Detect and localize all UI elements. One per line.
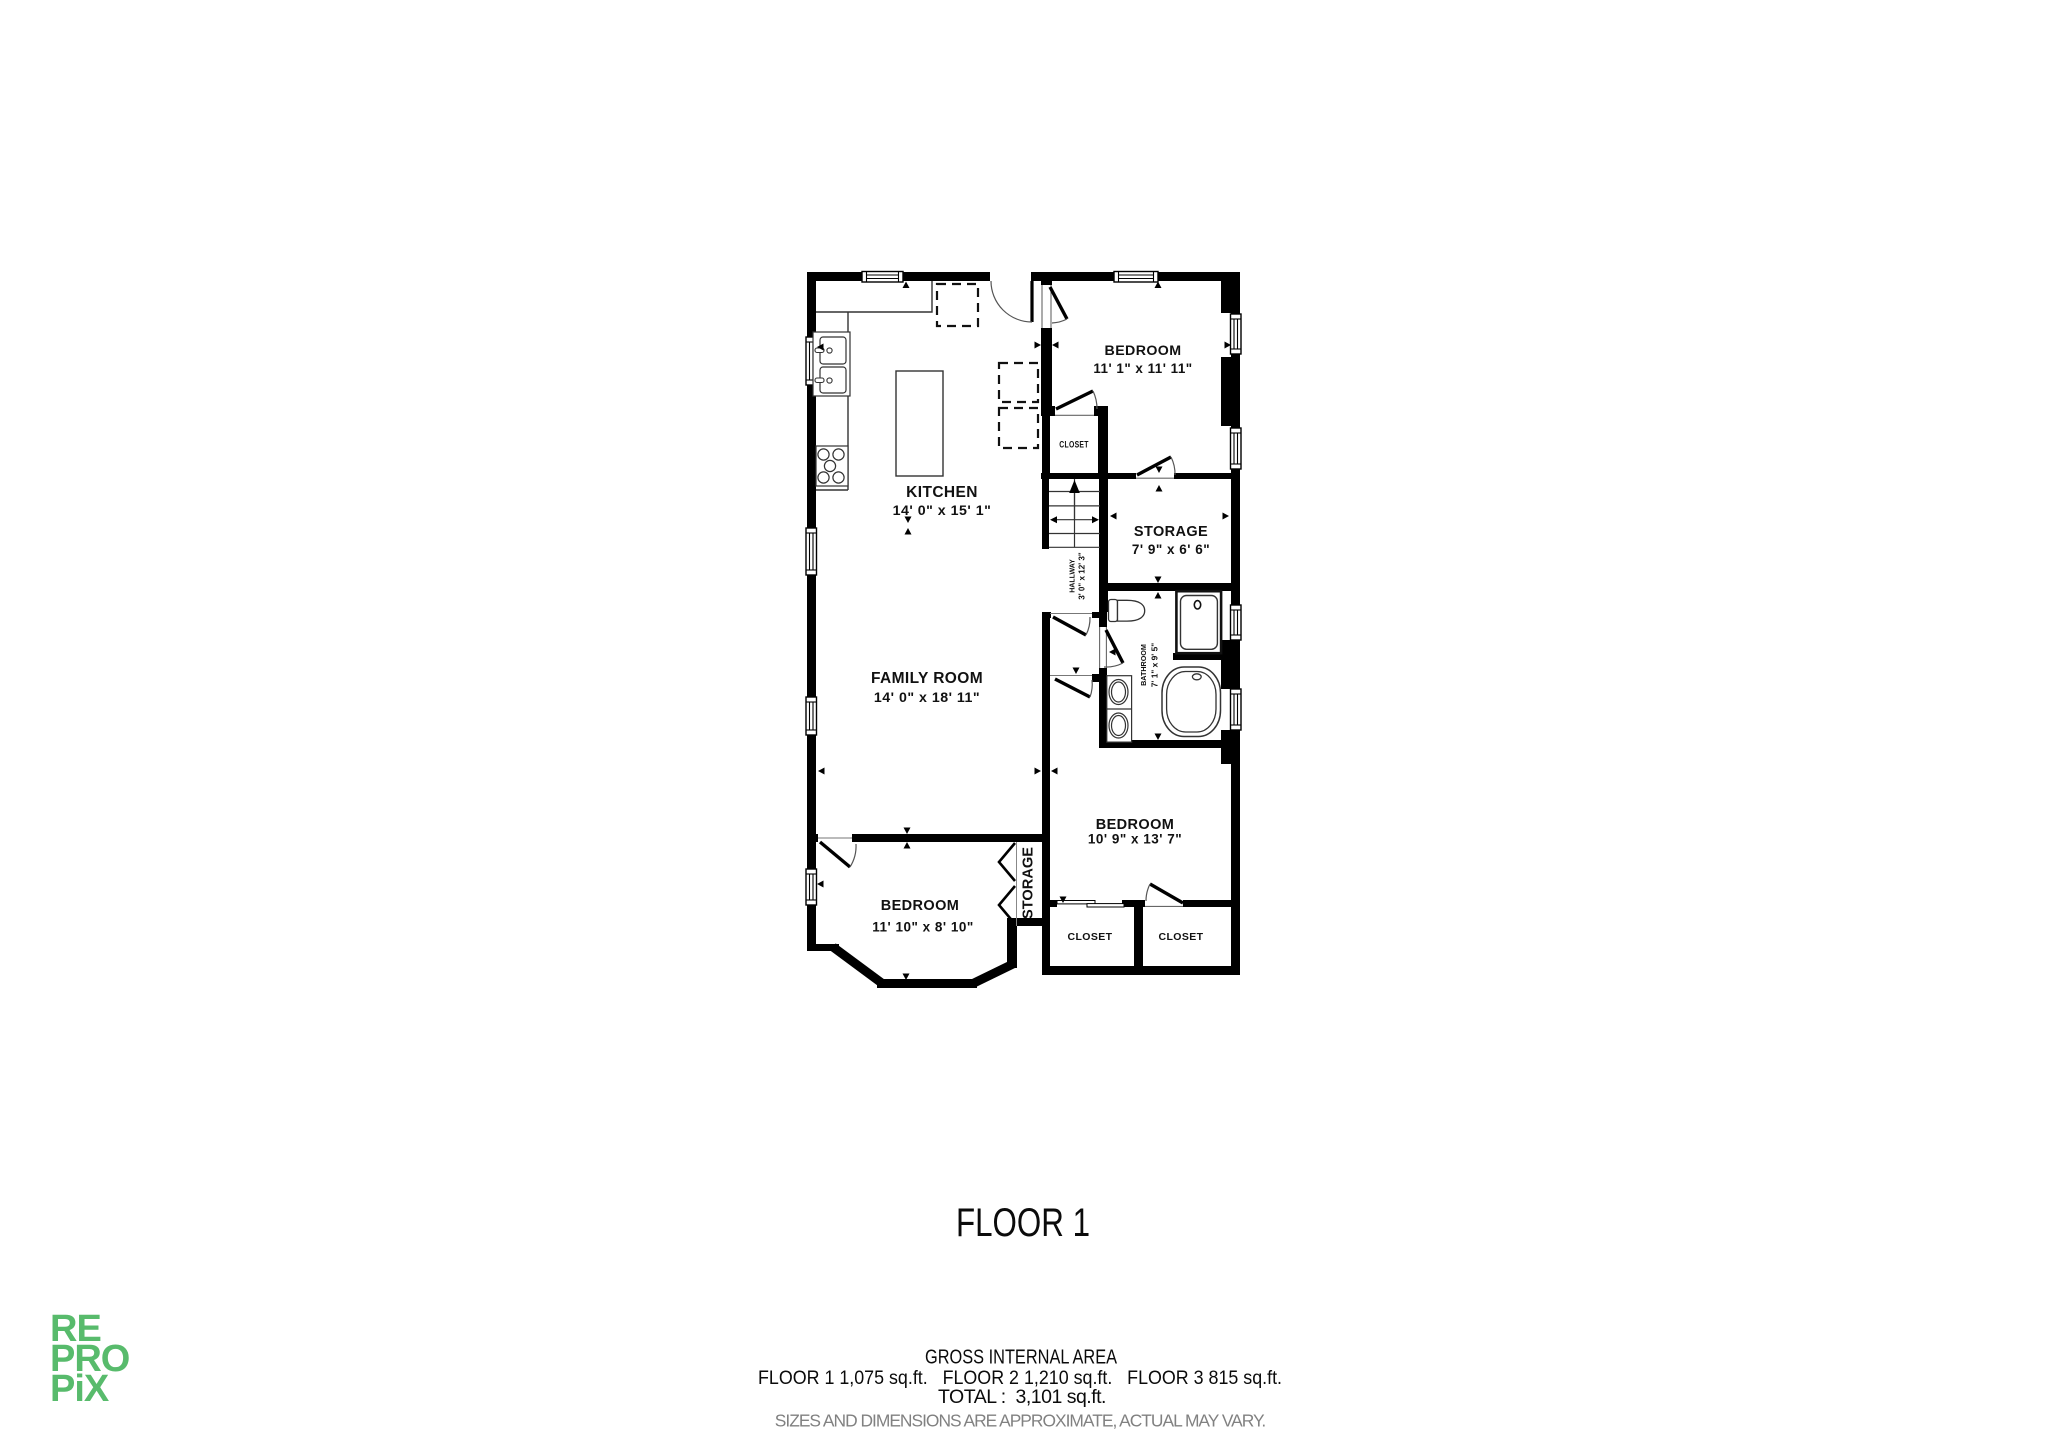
svg-text:7' 1" x 9' 5": 7' 1" x 9' 5" xyxy=(1150,643,1160,688)
svg-text:CLOSET: CLOSET xyxy=(1159,931,1204,943)
svg-text:CLOSET: CLOSET xyxy=(1059,440,1089,451)
svg-text:STORAGE: STORAGE xyxy=(1134,524,1208,540)
svg-text:BATHROOM: BATHROOM xyxy=(1139,644,1148,686)
svg-text:BEDROOM: BEDROOM xyxy=(881,898,960,914)
svg-text:CLOSET: CLOSET xyxy=(1068,931,1113,943)
svg-text:GROSS INTERNAL AREA: GROSS INTERNAL AREA xyxy=(925,1347,1118,1369)
svg-text:11' 10" x 8' 10": 11' 10" x 8' 10" xyxy=(872,920,974,935)
svg-text:STORAGE: STORAGE xyxy=(1021,847,1037,919)
svg-text:KITCHEN: KITCHEN xyxy=(906,484,978,501)
svg-text:PiX: PiX xyxy=(50,1368,110,1410)
svg-text:10' 9" x 13' 7": 10' 9" x 13' 7" xyxy=(1088,832,1182,847)
svg-text:14' 0" x 15' 1": 14' 0" x 15' 1" xyxy=(893,503,992,519)
svg-text:3' 0" x 12' 3": 3' 0" x 12' 3" xyxy=(1078,552,1087,600)
svg-text:FLOOR 1: FLOOR 1 xyxy=(956,1201,1090,1245)
svg-text:7' 9" x 6' 6": 7' 9" x 6' 6" xyxy=(1132,542,1210,557)
svg-text:TOTAL : 3,101 sq.ft.: TOTAL : 3,101 sq.ft. xyxy=(938,1386,1106,1408)
svg-text:HALLWAY: HALLWAY xyxy=(1070,559,1077,593)
svg-text:BEDROOM: BEDROOM xyxy=(1105,343,1182,359)
svg-text:FAMILY ROOM: FAMILY ROOM xyxy=(871,670,983,687)
svg-text:11' 1" x 11' 11": 11' 1" x 11' 11" xyxy=(1093,361,1192,376)
svg-text:SIZES AND DIMENSIONS ARE APPRO: SIZES AND DIMENSIONS ARE APPROXIMATE, AC… xyxy=(775,1411,1266,1431)
svg-text:14' 0" x 18' 11": 14' 0" x 18' 11" xyxy=(874,690,980,706)
